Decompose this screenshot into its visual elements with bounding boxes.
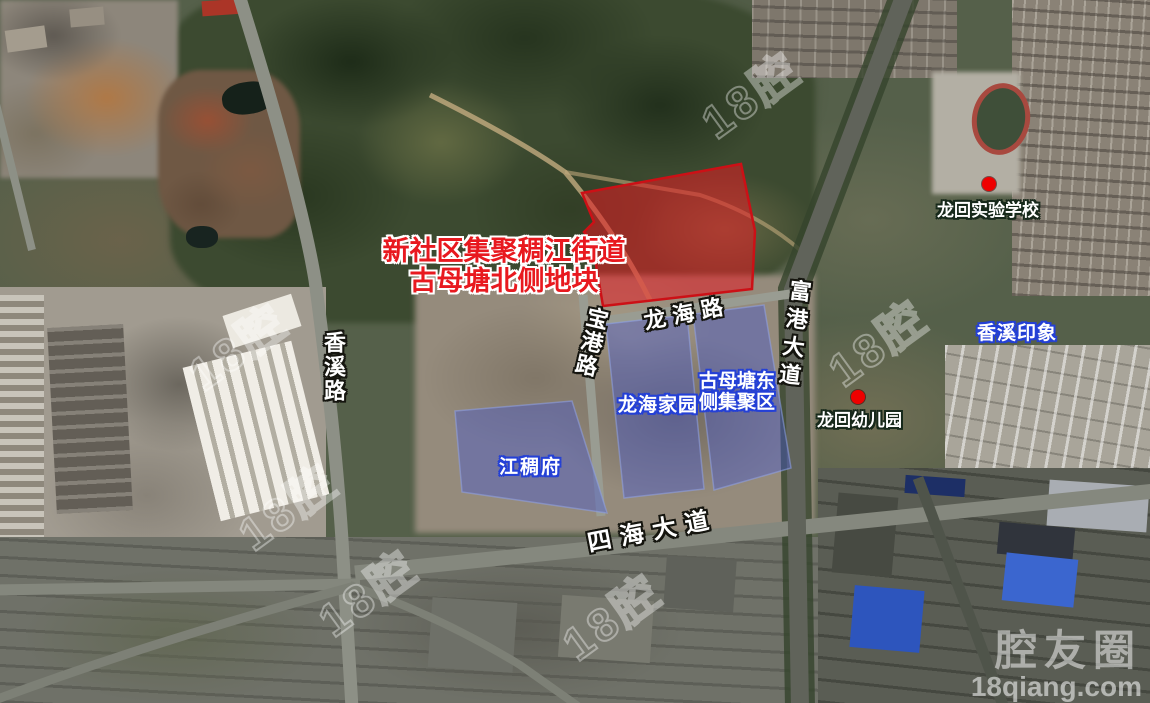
poi-marker-kindergarten — [851, 390, 865, 404]
poi-label-kindergarten: 龙回幼儿园 — [817, 406, 902, 431]
edge-road — [0, 100, 32, 250]
area-label-gumutang-east-line1: 古母塘东 — [699, 372, 775, 393]
tree-line — [793, 0, 906, 703]
target-parcel-title-line1: 新社区集聚稠江街道 — [370, 236, 638, 266]
target-parcel-title: 新社区集聚稠江街道 古母塘北侧地块 — [370, 236, 638, 296]
road-label-xiangxi: 香溪路 — [317, 331, 349, 403]
sihai-avenue-road — [355, 491, 1150, 573]
area-label-jiangchoufu: 江稠府 — [499, 452, 562, 479]
ramp-road — [350, 585, 578, 703]
poi-marker-school — [982, 177, 996, 191]
poi-label-school: 龙回实验学校 — [937, 196, 1039, 221]
ramp-road — [0, 586, 355, 700]
area-label-gumutang-east-line2: 侧集聚区 — [699, 393, 775, 414]
map-canvas: 新社区集聚稠江街道 古母塘北侧地块 香溪路 宝港路 龙海路 富港大道 四海大道 … — [0, 0, 1150, 703]
target-parcel-title-line2: 古母塘北侧地块 — [370, 266, 638, 296]
area-label-gumutang-east: 古母塘东 侧集聚区 — [699, 372, 775, 414]
area-label-longhai-jiayuan: 龙海家园 — [618, 390, 698, 417]
west-road — [0, 584, 360, 590]
area-label-xiangxi-yinxiang: 香溪印象 — [977, 318, 1057, 345]
